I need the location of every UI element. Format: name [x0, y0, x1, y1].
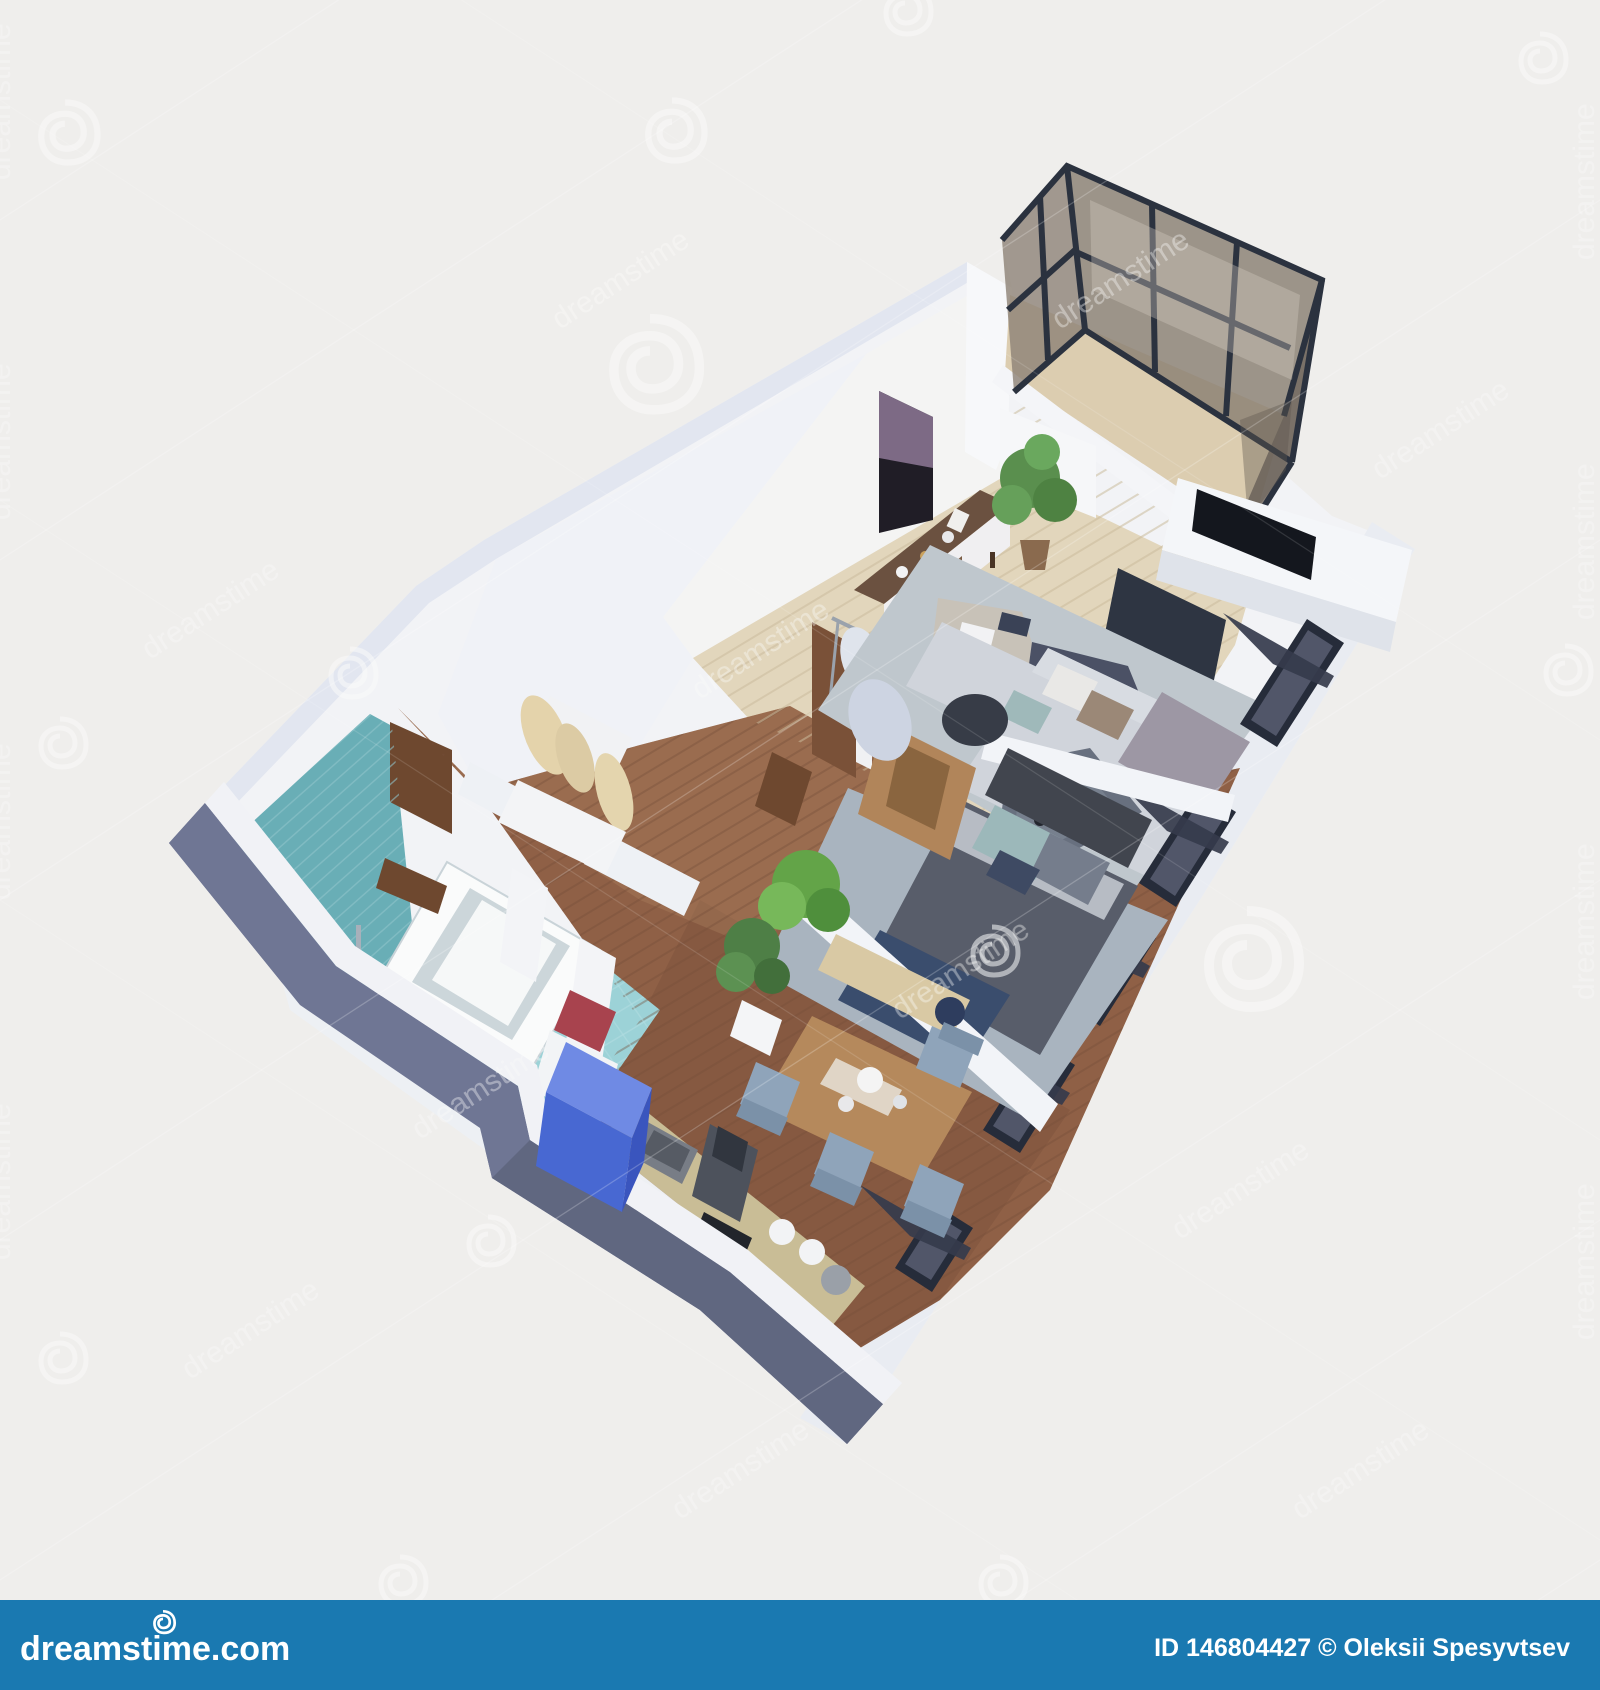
svg-text:ID 146804427 © Oleksii Spesyvt: ID 146804427 © Oleksii Spesyvtsev: [1154, 1634, 1570, 1662]
svg-text:dreamstime.com: dreamstime.com: [20, 1630, 290, 1668]
